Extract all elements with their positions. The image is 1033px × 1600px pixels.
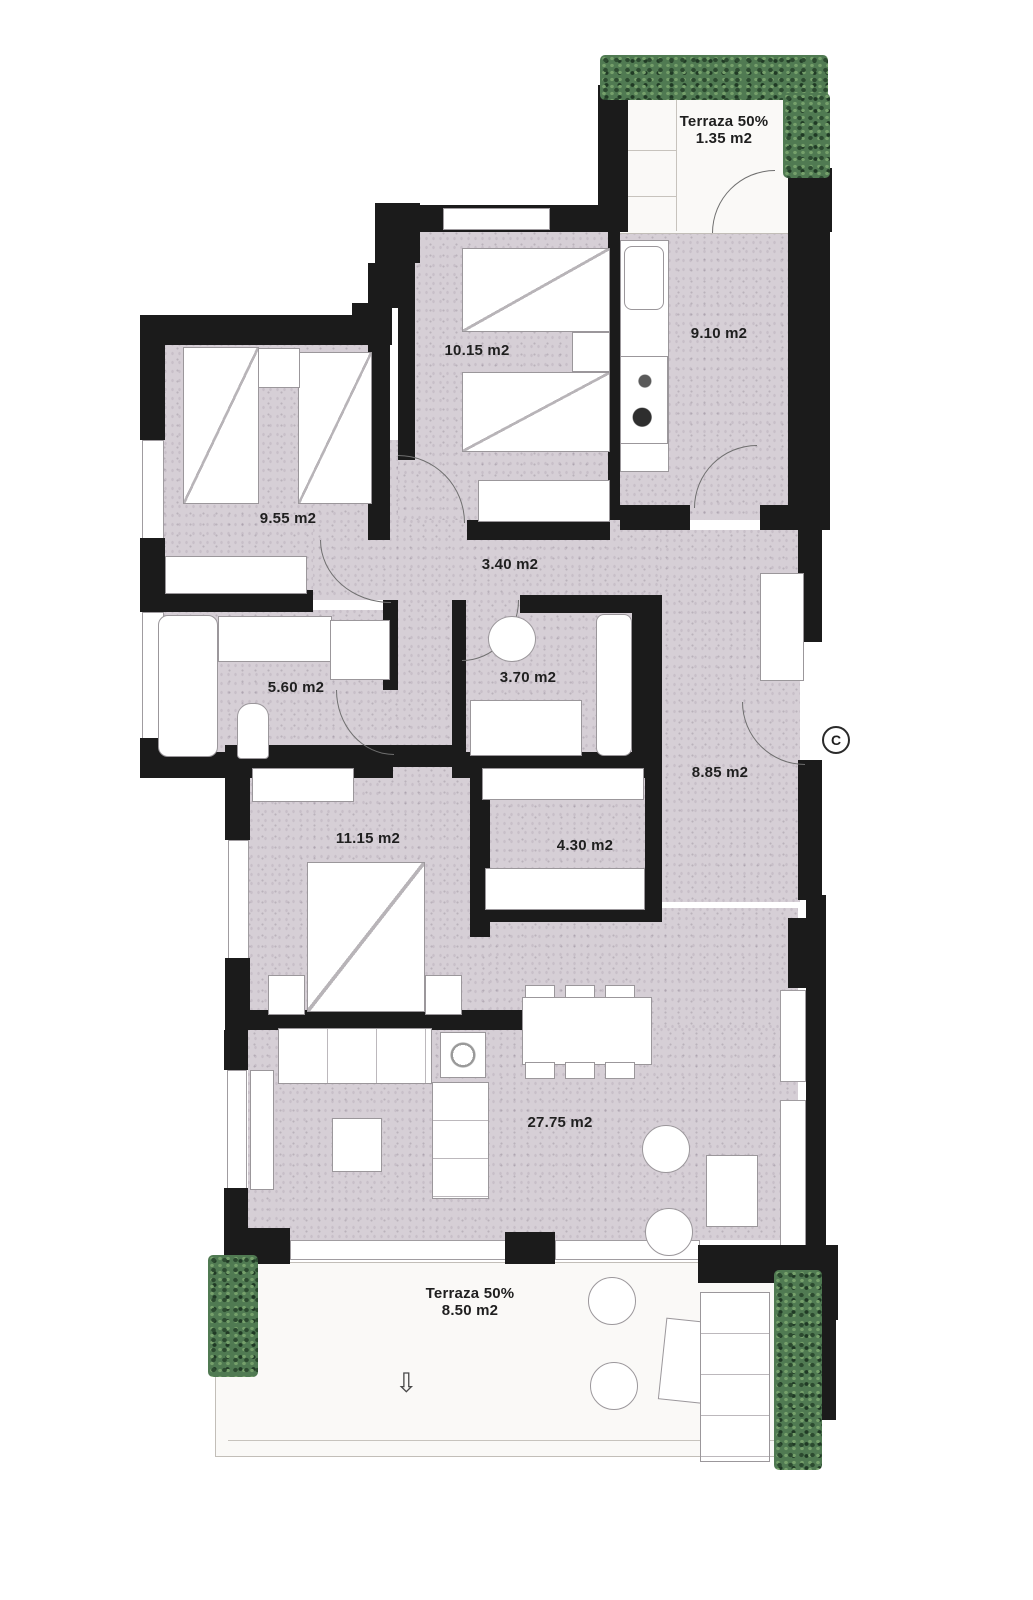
wall: [505, 1232, 555, 1264]
floor-plan: Terraza 50% 1.35 m2 9.10 m2 10.15 m2 9.5…: [0, 0, 1033, 1600]
wall: [788, 232, 830, 530]
room-label-salon: 27.75 m2: [528, 1114, 593, 1131]
wall: [467, 520, 610, 540]
wall: [788, 918, 808, 988]
bed: [183, 347, 259, 504]
outdoor-chair: [588, 1277, 636, 1325]
double-bed: [307, 862, 425, 1012]
window: [443, 208, 550, 230]
side-table: [440, 1032, 486, 1078]
wall: [798, 760, 822, 900]
sofa: [278, 1028, 432, 1084]
armchair: [642, 1125, 690, 1173]
window: [780, 1100, 806, 1260]
wardrobe: [482, 768, 644, 800]
bathtub: [596, 614, 632, 756]
window: [227, 1070, 247, 1190]
room-label-dormitorio-1: 10.15 m2: [445, 342, 510, 359]
room-area-text: 1.35 m2: [696, 130, 752, 147]
room-label-terraza-superior: Terraza 50% 1.35 m2: [680, 113, 769, 148]
wall: [368, 263, 398, 308]
corridor-floor: [390, 600, 460, 760]
wall: [632, 595, 662, 760]
built-in-wardrobe: [252, 768, 354, 802]
wall: [225, 958, 250, 1018]
window: [142, 440, 164, 540]
hedge: [208, 1255, 258, 1377]
room-label-bano-2: 3.70 m2: [500, 669, 556, 686]
room-label-recibidor: 8.85 m2: [692, 764, 748, 781]
dining-chair: [525, 1062, 555, 1079]
toilet: [488, 616, 536, 662]
closet: [760, 573, 804, 681]
bed: [462, 248, 610, 332]
nightstand: [425, 975, 462, 1015]
wall: [520, 595, 635, 613]
wall: [620, 505, 690, 530]
toilet: [237, 703, 269, 759]
wardrobe: [165, 556, 307, 594]
room-area-text: 8.50 m2: [442, 1302, 498, 1319]
tv-table: [706, 1155, 758, 1227]
wall: [806, 895, 826, 1262]
stove: [620, 356, 668, 444]
room-label-dormitorio-3: 11.15 m2: [336, 830, 400, 847]
dining-chair: [565, 1062, 595, 1079]
bed: [298, 352, 372, 504]
bed: [462, 372, 610, 452]
wall: [140, 315, 390, 345]
room-label-bano-1: 5.60 m2: [268, 679, 324, 696]
terrace-edge-line: [228, 1440, 776, 1441]
coffee-table: [332, 1118, 382, 1172]
nightstand: [268, 975, 305, 1015]
shower: [470, 700, 582, 756]
wall: [224, 1030, 248, 1070]
window: [780, 990, 806, 1082]
sliding-door: [290, 1240, 507, 1260]
wall: [140, 315, 165, 440]
room-label-cocina: 9.10 m2: [691, 325, 747, 342]
wall: [225, 765, 250, 840]
outdoor-chair: [590, 1362, 638, 1410]
wardrobe: [478, 480, 610, 522]
wall: [398, 253, 415, 460]
room-label-dormitorio-2: 9.55 m2: [260, 510, 316, 527]
cabinet: [330, 620, 390, 680]
room-label-distribuidor: 3.40 m2: [482, 556, 538, 573]
hedge: [783, 93, 830, 178]
bookshelf: [250, 1070, 274, 1190]
wall: [760, 505, 800, 530]
sink-counter: [218, 616, 332, 662]
room-label-text: Terraza 50%: [426, 1285, 515, 1302]
dining-table: [522, 997, 652, 1065]
terrace-divider: [676, 96, 677, 231]
window: [228, 840, 249, 960]
room-label-terraza-inferior: Terraza 50% 8.50 m2: [426, 1285, 515, 1320]
entrance-marker: C: [822, 726, 850, 754]
room-label-text: Terraza 50%: [680, 113, 769, 130]
hedge: [774, 1270, 822, 1470]
room-label-vestidor: 4.30 m2: [557, 837, 613, 854]
wardrobe: [485, 868, 645, 910]
wall: [645, 762, 662, 912]
outdoor-sofa: [700, 1292, 770, 1462]
nightstand: [572, 332, 610, 372]
armchair: [645, 1208, 693, 1256]
dining-chair: [605, 1062, 635, 1079]
kitchen-sink: [624, 246, 664, 310]
bathtub: [158, 615, 218, 757]
nightstand: [258, 348, 300, 388]
down-arrow-icon: ⇩: [395, 1370, 418, 1397]
chaise-lounge: [432, 1082, 489, 1199]
